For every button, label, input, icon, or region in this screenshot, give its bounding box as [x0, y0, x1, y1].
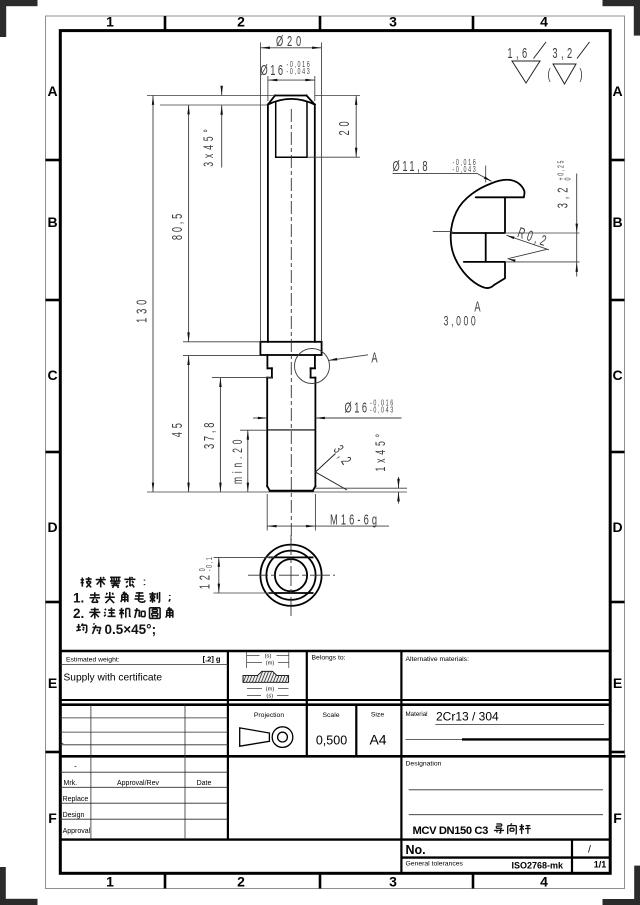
- svg-text:4: 4: [540, 874, 548, 890]
- svg-text:[.2] g: [.2] g: [203, 655, 221, 664]
- svg-text:(s): (s): [265, 654, 272, 660]
- svg-text:2Cr13 / 304: 2Cr13 / 304: [436, 710, 499, 724]
- svg-text:Approval/Rev: Approval/Rev: [117, 780, 160, 787]
- svg-text:Belongs to:: Belongs to:: [312, 655, 346, 662]
- svg-text:ISO2768-mk: ISO2768-mk: [511, 861, 564, 871]
- svg-text:B: B: [47, 214, 57, 230]
- svg-text:0: 0: [563, 176, 573, 181]
- svg-text:-0,1: -0,1: [205, 556, 215, 572]
- svg-text:Ø11,8: Ø11,8: [393, 158, 431, 175]
- svg-text:A: A: [371, 349, 378, 366]
- svg-text:3,2: 3,2: [552, 45, 575, 62]
- svg-text:1x45°: 1x45°: [373, 430, 389, 471]
- svg-text:20: 20: [336, 117, 353, 135]
- svg-text:2: 2: [237, 14, 245, 30]
- svg-text:Ø16: Ø16: [260, 62, 285, 79]
- svg-text:3: 3: [389, 874, 397, 890]
- svg-text:A4: A4: [369, 732, 386, 748]
- svg-text:1: 1: [106, 874, 114, 890]
- svg-text:-0,043: -0,043: [453, 165, 478, 175]
- svg-text:R0,2: R0,2: [515, 224, 551, 250]
- svg-text:): ): [580, 66, 583, 83]
- svg-text:80,5: 80,5: [169, 211, 186, 240]
- svg-text:(s): (s): [266, 694, 273, 700]
- svg-text:4: 4: [540, 14, 548, 30]
- svg-text:130: 130: [133, 296, 150, 323]
- svg-text:Scale: Scale: [322, 712, 339, 719]
- svg-text:Approval: Approval: [63, 828, 91, 835]
- svg-text:Material: Material: [406, 711, 428, 718]
- svg-text:E: E: [613, 675, 622, 691]
- svg-text:-0,043: -0,043: [370, 405, 395, 415]
- svg-text:1/1: 1/1: [594, 860, 607, 870]
- svg-text:(m): (m): [266, 687, 275, 693]
- svg-text:1: 1: [106, 14, 114, 30]
- svg-text:-0,043: -0,043: [287, 67, 312, 77]
- svg-text:/: /: [588, 844, 591, 856]
- svg-text:45: 45: [169, 419, 186, 437]
- svg-text:min.20: min.20: [230, 436, 246, 484]
- svg-text:0.5×45°;: 0.5×45°;: [105, 622, 157, 637]
- svg-text:Replace: Replace: [63, 796, 89, 803]
- svg-text:-: -: [74, 762, 77, 771]
- svg-text:3,2: 3,2: [330, 442, 356, 470]
- svg-text:0,500: 0,500: [316, 734, 347, 748]
- svg-text:B: B: [612, 214, 622, 230]
- svg-text:D: D: [47, 519, 57, 535]
- svg-text:Date: Date: [197, 780, 212, 787]
- svg-text:A: A: [612, 83, 622, 99]
- svg-text:2.: 2.: [73, 606, 84, 621]
- svg-text:Ø16: Ø16: [344, 399, 369, 416]
- svg-text:1.: 1.: [73, 591, 84, 606]
- svg-text:Estimated weight:: Estimated weight:: [66, 657, 120, 664]
- svg-text:1,6: 1,6: [507, 45, 530, 62]
- svg-text:Design: Design: [63, 812, 85, 819]
- svg-text:12: 12: [196, 571, 213, 589]
- svg-text:Alternative materials:: Alternative materials:: [406, 656, 470, 663]
- svg-text:MCV DN150 C3: MCV DN150 C3: [413, 825, 489, 837]
- svg-text:General tolerances: General tolerances: [406, 861, 464, 868]
- svg-text:(: (: [548, 66, 552, 83]
- svg-text:3: 3: [389, 14, 397, 30]
- svg-text:(m): (m): [266, 661, 275, 667]
- svg-text:C: C: [612, 367, 622, 383]
- svg-text:2: 2: [237, 874, 245, 890]
- svg-text:F: F: [48, 810, 57, 826]
- svg-text:37,8: 37,8: [201, 420, 218, 449]
- svg-text:Ø20: Ø20: [276, 33, 305, 50]
- svg-text:3,2: 3,2: [554, 184, 571, 208]
- svg-text:D: D: [612, 519, 622, 535]
- svg-text:E: E: [48, 675, 57, 691]
- svg-text:M16-6g: M16-6g: [330, 511, 380, 528]
- svg-text:Supply with certificate: Supply with certificate: [64, 673, 163, 684]
- svg-text:3x45°: 3x45°: [201, 125, 217, 166]
- svg-text:Size: Size: [371, 712, 384, 719]
- svg-text:No.: No.: [406, 843, 426, 857]
- svg-text:Designation: Designation: [406, 761, 442, 768]
- svg-text:-: -: [61, 739, 64, 748]
- svg-text:F: F: [613, 810, 622, 826]
- svg-text:C: C: [47, 367, 57, 383]
- svg-text:Mrk.: Mrk.: [64, 780, 78, 787]
- svg-text:3,000: 3,000: [444, 313, 479, 329]
- svg-text:A: A: [47, 83, 57, 99]
- svg-text:Projection: Projection: [254, 712, 284, 719]
